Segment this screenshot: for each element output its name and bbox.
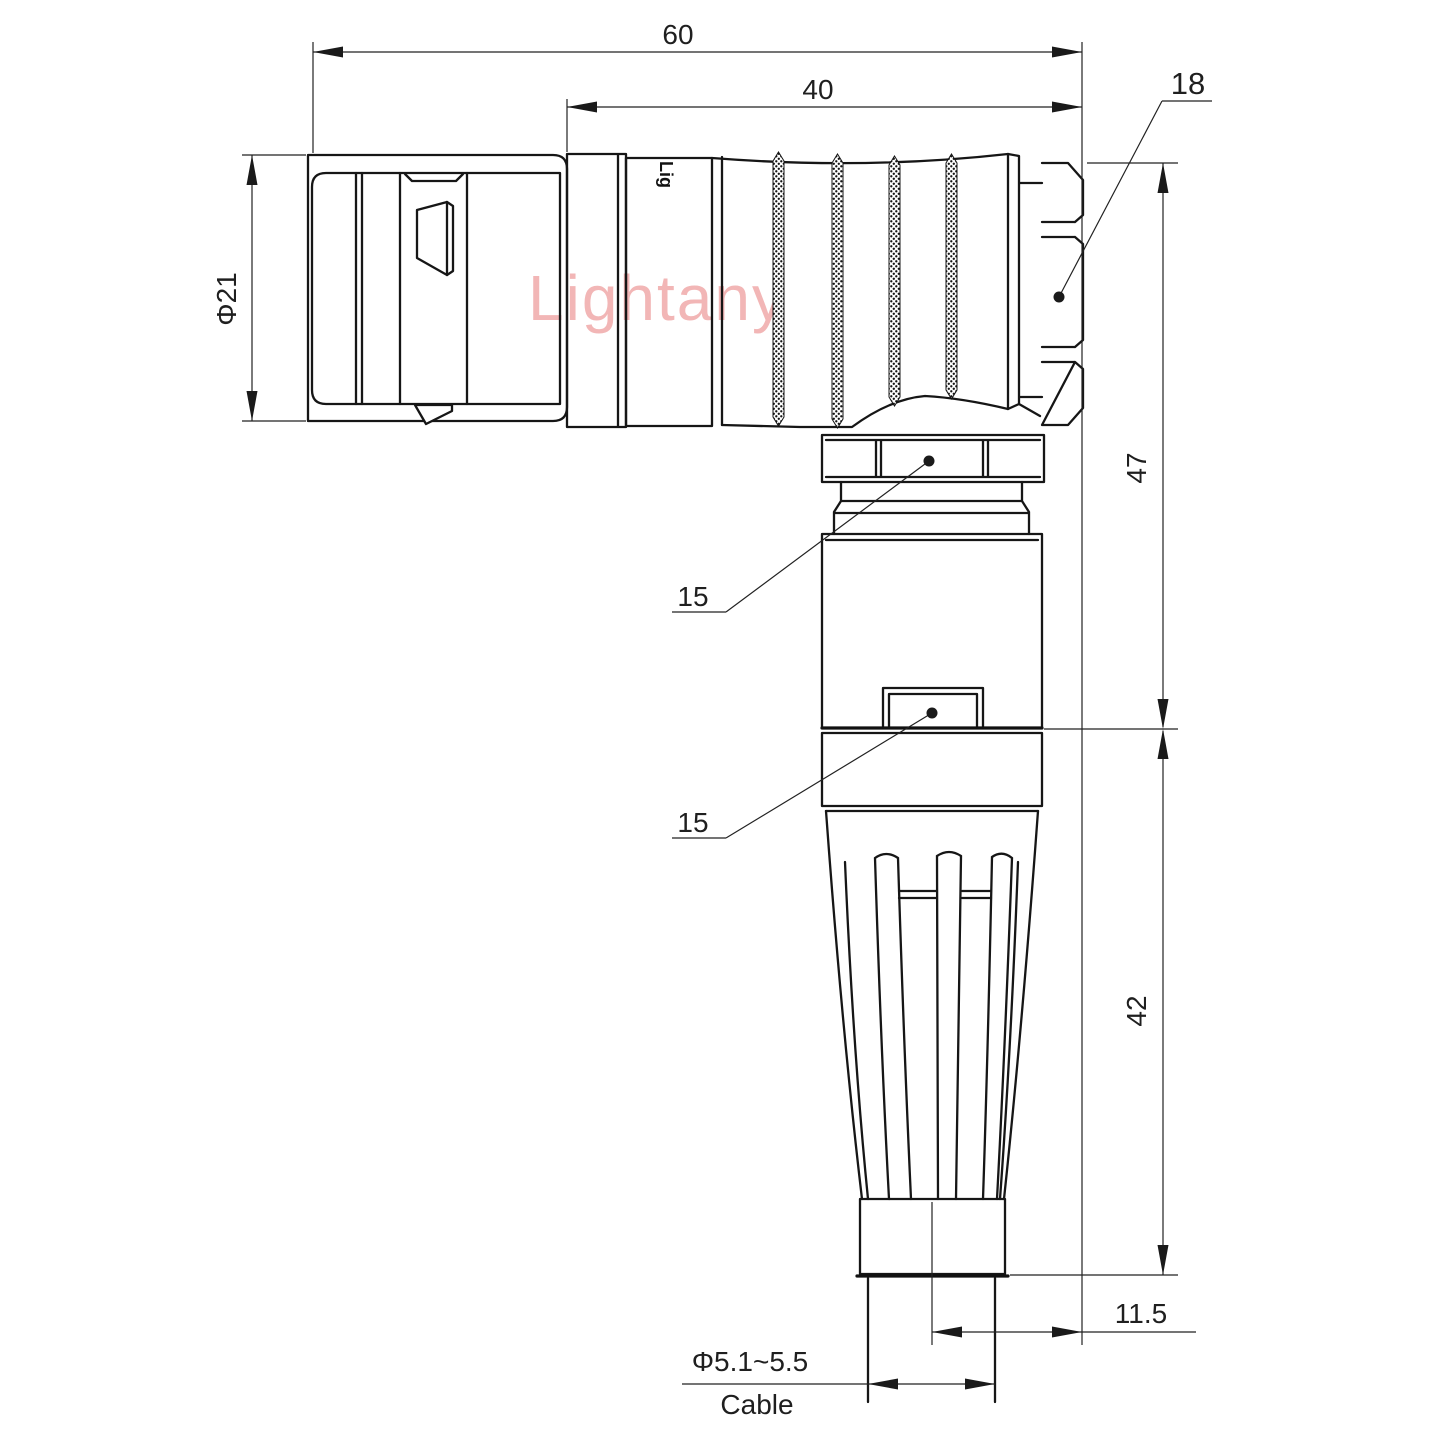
leader-15-upper-dot (924, 456, 935, 467)
dim-phi21-label: Φ21 (211, 272, 242, 325)
dim-cable-diameter-label: Φ5.1~5.5 (692, 1346, 809, 1377)
lower-housing (822, 733, 1042, 811)
neck-rings (834, 482, 1029, 534)
key-notch (405, 174, 463, 181)
knurl-bands (773, 152, 957, 428)
connector-drawing: Lightany Lig (0, 0, 1440, 1440)
dim-47-label: 47 (1121, 452, 1152, 483)
barrel-engraving-text: Lig (656, 161, 676, 188)
leader-15-lower-label: 15 (677, 807, 708, 838)
knurl-bottom-edge (722, 396, 1008, 427)
leader-15-lower-line (672, 713, 932, 838)
elbow-assembly (822, 435, 1044, 1402)
inner-shell-outline (312, 173, 560, 404)
housing-cylinder (822, 534, 1042, 727)
cable-text-label: Cable (720, 1389, 793, 1420)
end-cap (1008, 154, 1042, 416)
extension-lines (242, 42, 1178, 1345)
dim-40-label: 40 (802, 74, 833, 105)
boot-flutes (845, 852, 1018, 1199)
dim-42-label: 42 (1121, 995, 1152, 1026)
leader-18-label: 18 (1171, 66, 1205, 101)
leader-15-upper-label: 15 (677, 581, 708, 612)
shell-seam-lines (356, 173, 467, 404)
knurl-top-edge (712, 154, 1008, 163)
technical-drawing-page: Lightany Lig (0, 0, 1440, 1440)
housing-tab (883, 688, 983, 727)
leader-18-dot (1054, 292, 1065, 303)
leader-15-upper-line (672, 461, 929, 612)
dim-11-5-label: 11.5 (1115, 1298, 1167, 1329)
dim-60-label: 60 (662, 19, 693, 50)
leader-15-lower-dot (927, 708, 938, 719)
latch-window (417, 202, 447, 275)
